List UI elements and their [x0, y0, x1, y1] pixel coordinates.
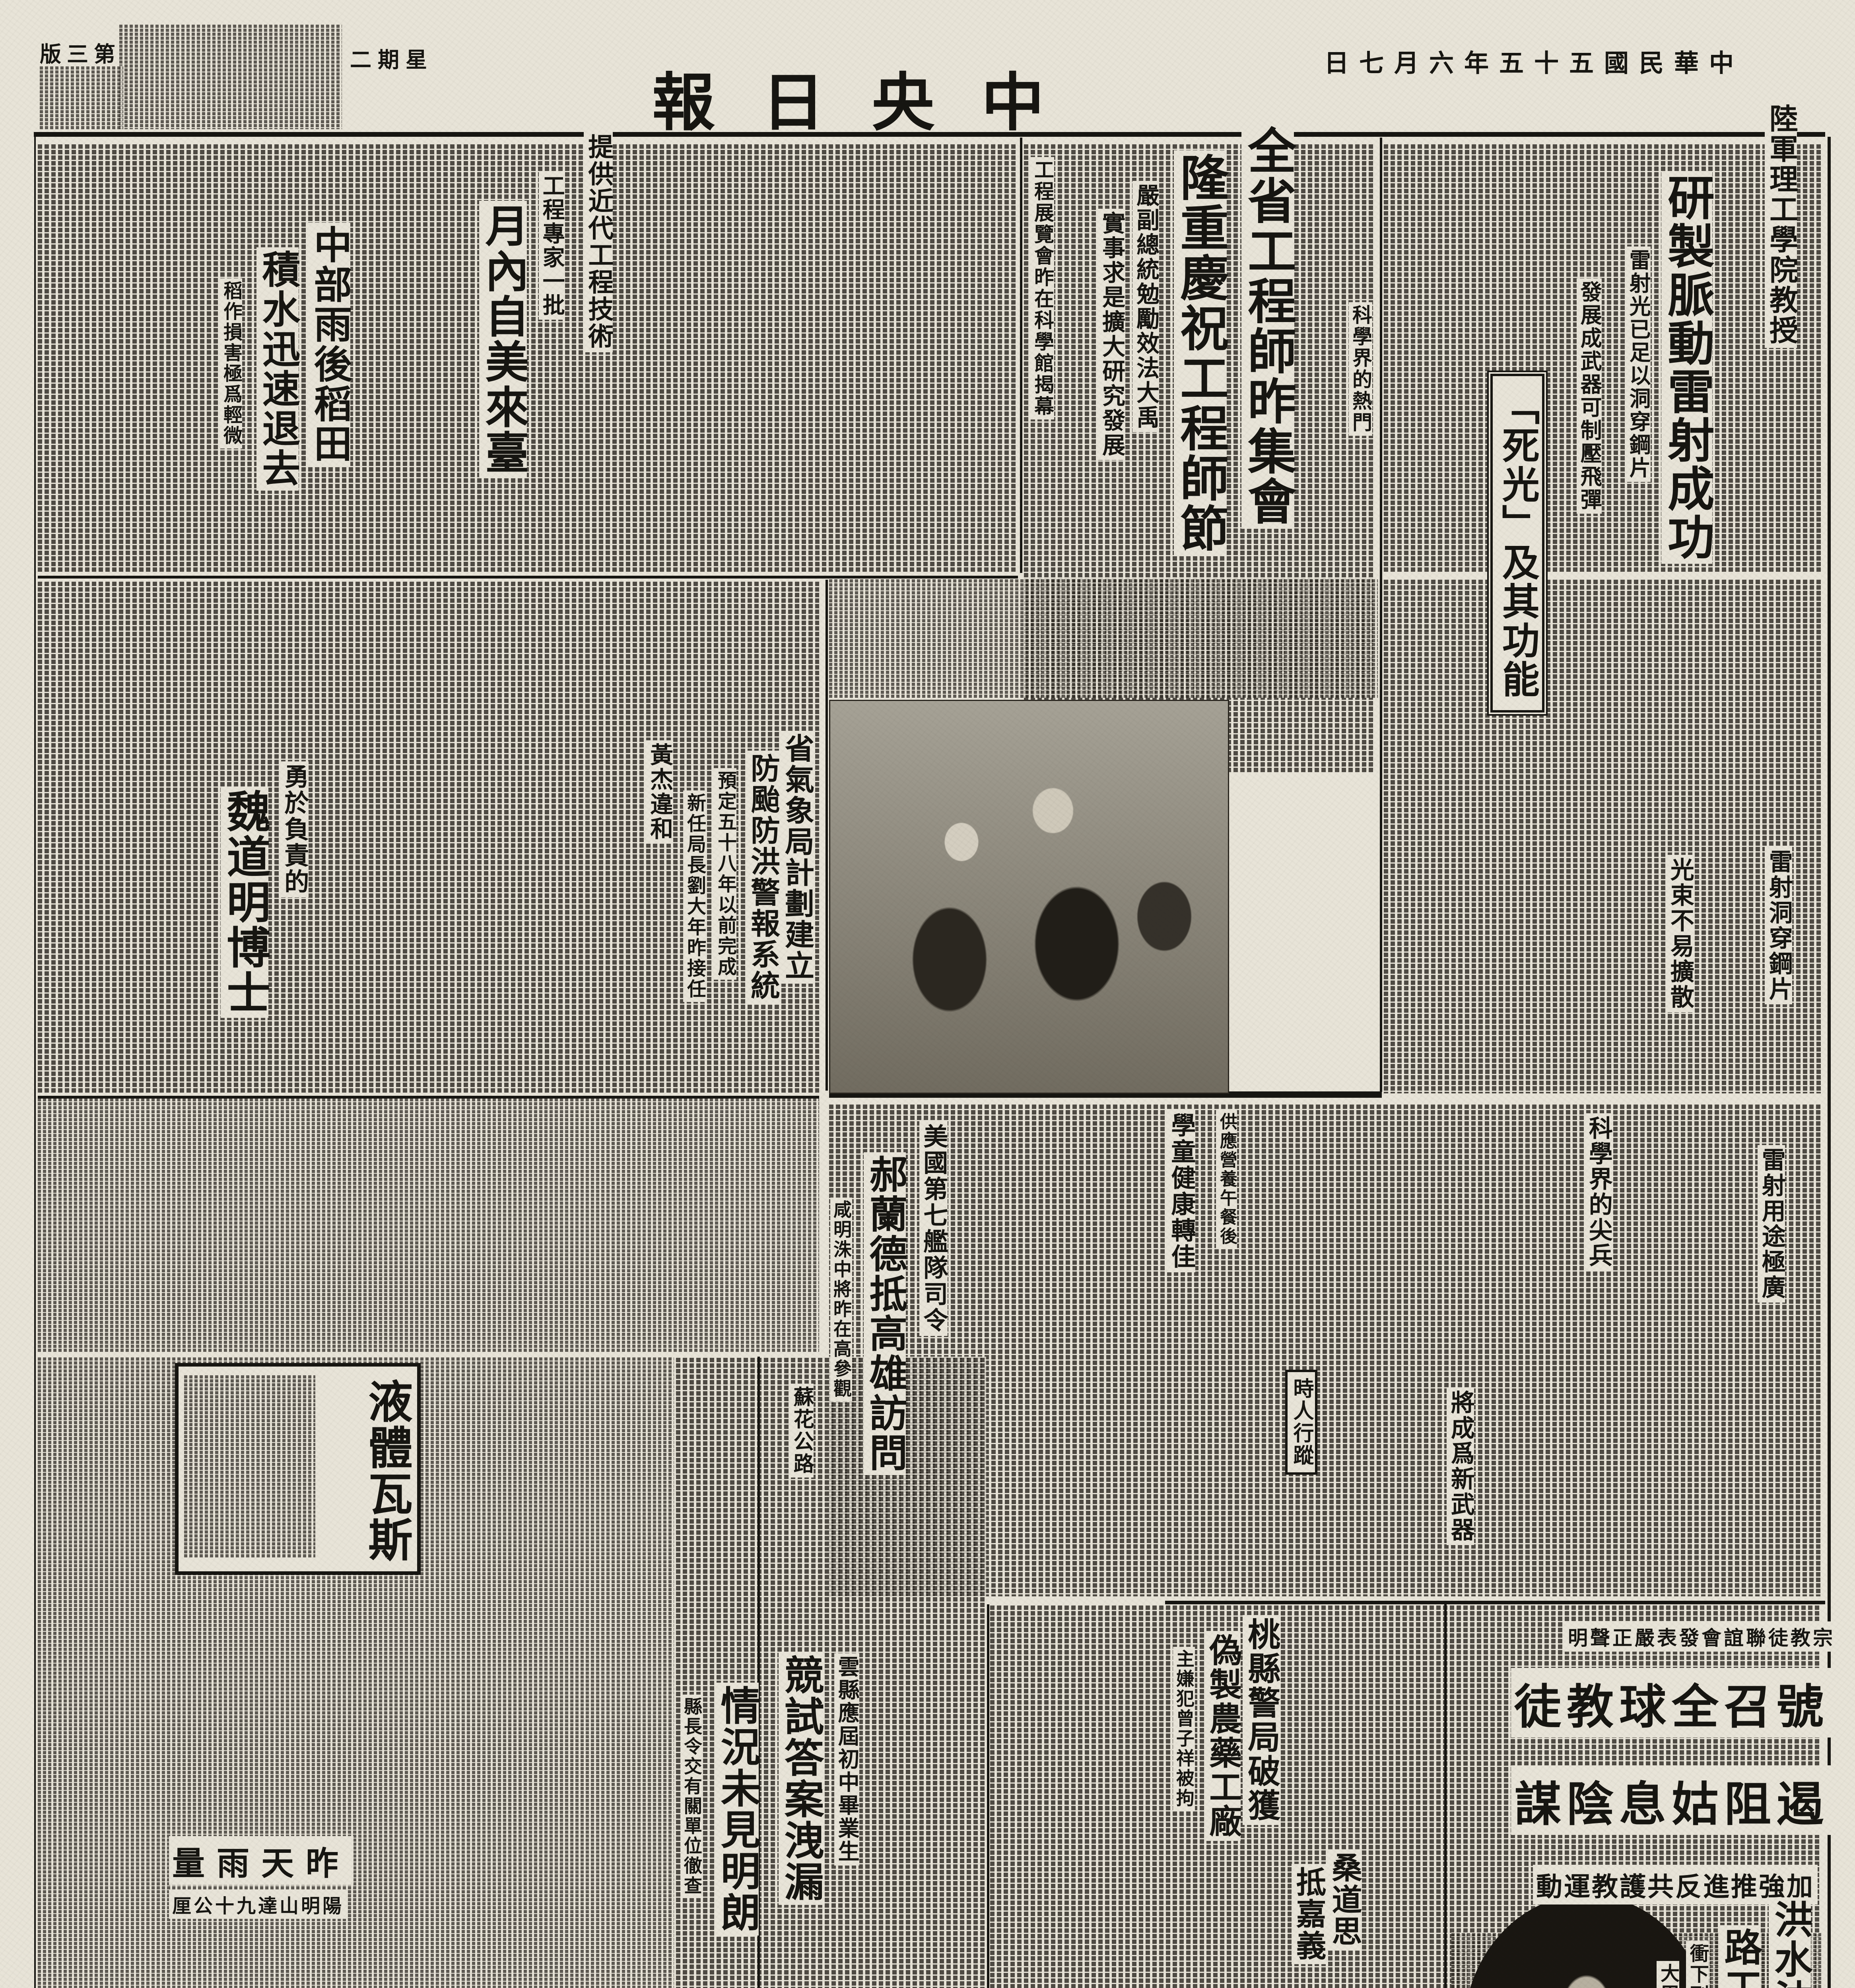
paddy-headline-1: 中部雨後稻田 — [308, 223, 350, 466]
flood-subhead-1: 衝下列車僥倖化險爲夷 — [1686, 1941, 1709, 1988]
laser-subhead-1: 雷射光已足以洞穿鋼片 — [1626, 247, 1651, 482]
body-text-block — [1384, 579, 1821, 1093]
flood-subhead-2: 大甲道班長陳濟標 — [1657, 1961, 1679, 1988]
engineers-day-ceremony-photo — [829, 700, 1229, 1094]
deathray-boxed-headline: 「死光」及其功能 — [1490, 374, 1544, 712]
laser-headline: 研製脈動雷射成功 — [1661, 171, 1712, 564]
rainfall-headline-line2: 厘公十九達山明陽 — [169, 1889, 347, 1919]
religion-headline-1: 徒教球全召號 — [1511, 1668, 1832, 1738]
deathray-section-vanguard: 科學界的尖兵 — [1585, 1113, 1612, 1271]
rainfall-headline-line1: 量雨天昨 — [169, 1836, 354, 1885]
exam-subhead: 縣長令交有關單位徹查 — [681, 1695, 703, 1898]
deathray-section-beam: 光束不易擴散 — [1666, 855, 1694, 1012]
taoyuan-headline-2: 偽製農藥工廠 — [1204, 1631, 1241, 1841]
fleet-subhead: 咸明洙中將昨在高參觀 — [830, 1198, 852, 1401]
exam-headline-1: 競試答案洩漏 — [779, 1652, 822, 1905]
huang-headline: 黃杰違和 — [646, 740, 673, 844]
people-column-box-title: 時人行蹤 — [1285, 1370, 1317, 1475]
deathray-kicker: 科學界的熱門 — [1349, 302, 1372, 436]
gas-advertisement-text — [184, 1375, 315, 1557]
paper-title: 報日央中 — [652, 52, 1091, 143]
wei-headline: 魏道明博士 — [221, 786, 268, 1018]
experts-kicker: 提供近代工程技術 — [584, 131, 613, 352]
weather-headline-2: 防颱防洪警報系統 — [746, 751, 779, 1004]
suhua-road-headline: 蘇花公路 — [789, 1384, 814, 1477]
experts-subhead: 工程專家一批 — [539, 172, 565, 320]
section-rule — [38, 576, 1018, 579]
gas-advertisement-title: 液體瓦斯 — [363, 1378, 410, 1564]
laser-kicker: 陸軍理工學院教授 — [1765, 101, 1797, 348]
masthead-edition: 版三第 — [40, 37, 121, 68]
engineers-headline-1: 全省工程師昨集會 — [1241, 123, 1294, 529]
fleet-kicker: 美國第七艦隊司令 — [919, 1121, 948, 1336]
deathray-section-pierce: 雷射洞穿鋼片 — [1765, 847, 1792, 1004]
sang-headline-col2: 抵嘉義 — [1292, 1864, 1326, 1964]
exam-headline-2: 情況未見明朗 — [715, 1683, 759, 1936]
flood-headline-2: 路工獨力搶修 — [1719, 1925, 1761, 1988]
laser-subhead-2: 發展成武器可制壓飛彈 — [1577, 278, 1602, 514]
paddy-headline-2: 積水迅速退去 — [256, 247, 299, 491]
engineers-subhead-1: 嚴副總統勉勵效法大禹 — [1132, 181, 1159, 432]
lunch-headline: 學童健康轉佳 — [1167, 1110, 1195, 1272]
exam-kicker: 雲縣應屆初中畢業生 — [834, 1653, 859, 1866]
engineers-subhead-3: 工程展覽會昨在科學館揭幕 — [1031, 157, 1054, 419]
taoyuan-subhead: 主嫌犯曾子祥被拘 — [1173, 1647, 1195, 1811]
deathray-section-weapon: 將成爲新武器 — [1447, 1388, 1474, 1545]
paddy-subhead: 稻作損害極爲輕微 — [219, 278, 242, 448]
body-text-block — [829, 579, 1378, 698]
masthead-date: 日七月六年五十五國民華中 — [1324, 43, 1744, 79]
taoyuan-headline-1: 桃縣警局破獲 — [1243, 1615, 1279, 1825]
column-rule — [826, 580, 828, 1091]
religion-headline-2: 謀陰息姑阻遏 — [1511, 1765, 1832, 1835]
wei-kicker: 勇於負責的 — [280, 761, 309, 897]
sang-headline-col1: 桑道思 — [1327, 1850, 1362, 1950]
engineers-headline-2: 隆重慶祝工程師節 — [1174, 150, 1226, 556]
engineers-subhead-2: 實事求是擴大研究發展 — [1098, 209, 1125, 460]
lunch-kicker: 供應營養午餐後 — [1216, 1110, 1237, 1248]
weather-subhead-1: 預定五十八年以前完成 — [714, 768, 736, 980]
body-text-block — [38, 1097, 819, 1352]
column-rule — [987, 1604, 989, 1988]
masthead-weekday: 二期星 — [350, 42, 433, 74]
fleet-headline: 郝蘭德抵高雄訪問 — [864, 1152, 906, 1475]
body-text-block — [1384, 143, 1821, 573]
section-rule — [38, 1096, 819, 1099]
masthead-price-info-text — [40, 66, 123, 129]
deathray-section-uses: 雷射用途極廣 — [1758, 1145, 1785, 1303]
weather-headline-1: 省氣象局計劃建立 — [780, 731, 813, 984]
masthead-publisher-info-text — [119, 24, 342, 129]
column-rule — [1444, 1604, 1447, 1988]
religion-kicker: 明聲正嚴表發會誼聯徒教宗 — [1565, 1621, 1838, 1652]
gas-advertisement-box: 液體瓦斯 — [175, 1363, 421, 1575]
section-rule — [1165, 1601, 1825, 1604]
column-rule — [1020, 138, 1022, 573]
newspaper-page: 報日央中 日七月六年五十五國民華中 二期星 版三第 陸軍理工學院教授 研製脈動雷… — [0, 0, 1855, 1988]
experts-headline: 月內自美來臺 — [479, 201, 527, 478]
left-edge-rule — [34, 137, 36, 1988]
column-rule — [1380, 138, 1382, 1092]
weather-subhead-2: 新任局長劉大年昨接任 — [683, 790, 706, 1002]
flood-headline-1: 洪水沖毀路基 — [1769, 1897, 1811, 1988]
